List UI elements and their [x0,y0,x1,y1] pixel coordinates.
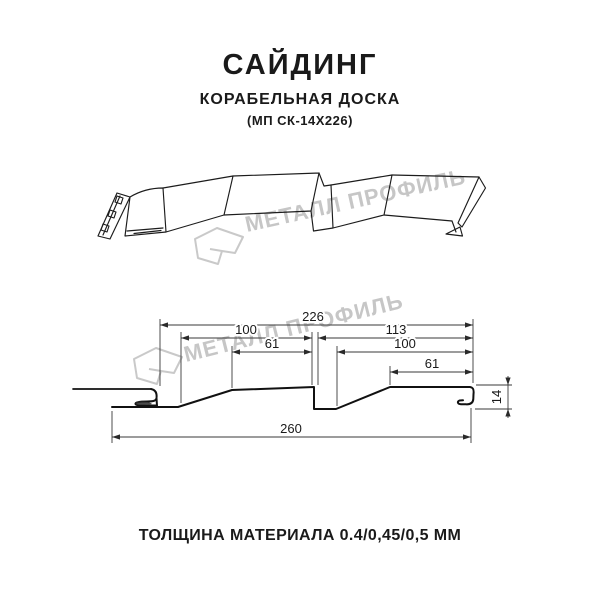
product-drawing-page: САЙДИНГ КОРАБЕЛЬНАЯ ДОСКА (МП СК-14Х226)… [0,0,600,600]
brand-logo-icon [134,348,182,384]
dim-pitch-right: 113 [386,322,407,337]
dim-depth: 14 [489,390,504,404]
slope-face-1 [163,176,233,232]
watermark-upper: МЕТАЛЛ ПРОФИЛЬ [195,164,468,264]
dim-flat-left: 61 [265,336,279,351]
technical-drawing: МЕТАЛЛ ПРОФИЛЬ МЕТАЛЛ ПРОФИЛЬ [0,0,600,600]
watermark-text: МЕТАЛЛ ПРОФИЛЬ [181,288,406,367]
brand-logo-icon [195,228,243,264]
dim-overall-bottom: 260 [280,421,302,436]
material-thickness-note: ТОЛЩИНА МАТЕРИАЛА 0.4/0,45/0,5 ММ [0,527,600,545]
cross-section-view [73,387,474,409]
dim-pitch-left: 100 [235,322,257,337]
dim-inner-right: 100 [394,336,416,351]
flange-hole [115,196,123,204]
flange-hole [101,224,109,232]
dim-flat-right: 61 [425,356,439,371]
dim-total-top: 226 [302,309,324,324]
profile-outline [112,387,474,409]
